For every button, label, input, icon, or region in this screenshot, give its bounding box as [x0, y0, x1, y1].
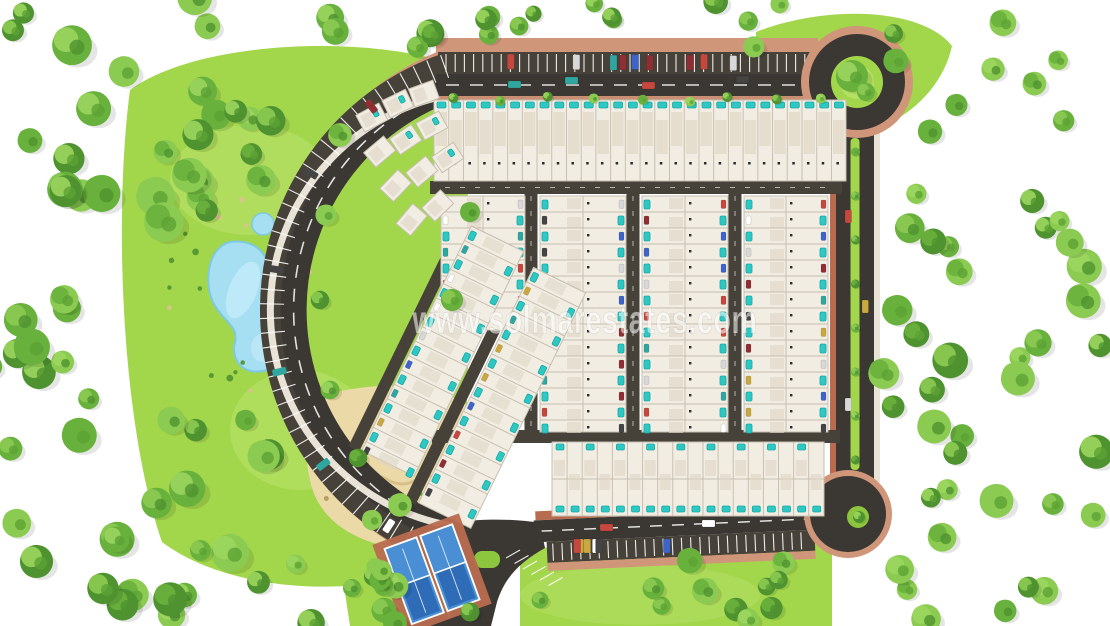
- site-plan-stage: www.solmarestates.com: [0, 0, 1110, 626]
- site-plan-render: www.solmarestates.com: [0, 0, 1110, 626]
- watermark: www.solmarestates.com: [412, 299, 758, 342]
